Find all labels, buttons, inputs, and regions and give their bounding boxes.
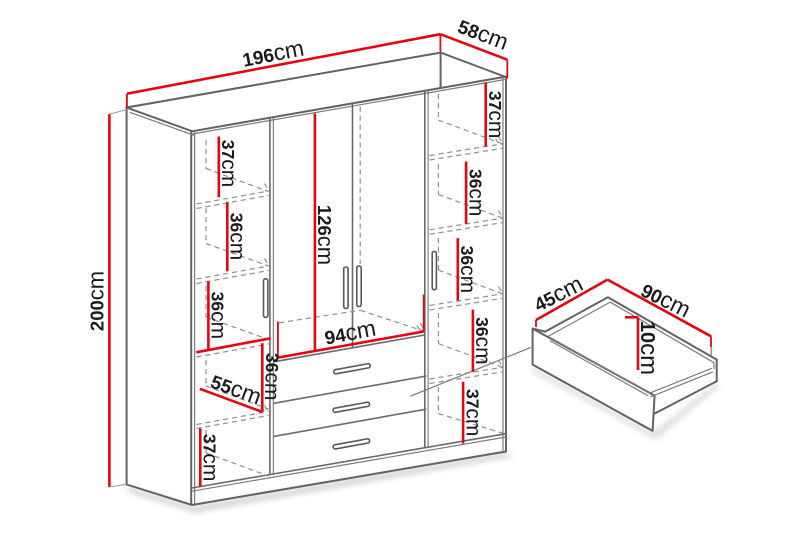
svg-text:37cm: 37cm (484, 91, 507, 138)
svg-text:58cm: 58cm (455, 12, 513, 55)
svg-text:37cm: 37cm (199, 434, 222, 481)
svg-text:10cm: 10cm (635, 321, 662, 375)
svg-text:36cm: 36cm (207, 292, 230, 339)
svg-text:36cm: 36cm (260, 353, 285, 401)
svg-text:90cm: 90cm (637, 276, 695, 322)
svg-text:36cm: 36cm (456, 246, 479, 293)
svg-text:196cm: 196cm (240, 35, 306, 72)
svg-text:126cm: 126cm (313, 205, 338, 265)
svg-text:36cm: 36cm (226, 213, 249, 260)
svg-text:37cm: 37cm (217, 140, 240, 187)
svg-text:200cm: 200cm (84, 271, 109, 331)
svg-text:45cm: 45cm (529, 270, 587, 316)
svg-text:36cm: 36cm (464, 169, 487, 216)
svg-text:36cm: 36cm (471, 317, 494, 364)
svg-text:37cm: 37cm (461, 389, 484, 436)
